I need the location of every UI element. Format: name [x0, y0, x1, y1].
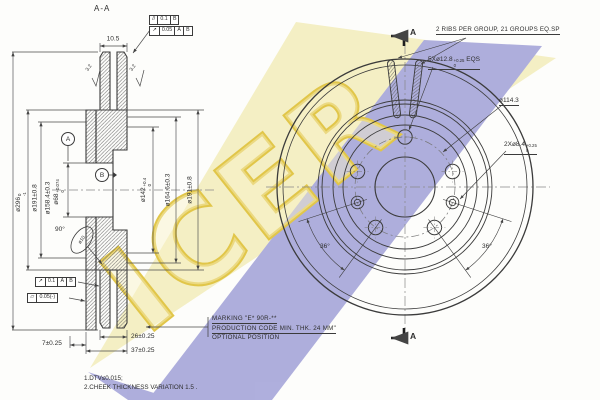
note-cheek: 2.CHEEK THICKNESS VARIATION 1.5 . — [84, 383, 197, 392]
dim-dia68: ø68+0.0740 — [53, 179, 65, 204]
marking-note: MARKING "E* 90R-** PRODUCTION CODE MIN. … — [212, 314, 336, 343]
fcf-flatness: ▱0.05(-) — [28, 293, 58, 303]
fcf-runout: ↗0.1AB — [36, 277, 76, 287]
callout-2-holes: 2Xø8.4+0.250 — [504, 141, 537, 155]
dim-dia296: ø2960-1 — [15, 192, 27, 212]
dim-dia164: ø164.6±0.3 — [165, 174, 172, 207]
ribs-note: 2 RIBS PER GROUP, 21 GROUPS EQ.SP — [436, 26, 560, 35]
section-flag-top: A — [410, 27, 416, 37]
footer-notes: 1.DTV≤0.015; 2.CHEEK THICKNESS VARIATION… — [84, 374, 197, 392]
dim-dia142: ø142+0.40 — [140, 178, 152, 202]
marking-line1: MARKING "E* 90R-** — [212, 315, 277, 324]
angle-36-right: 36° — [482, 243, 492, 250]
dim-dia191-right: ø191±0.8 — [187, 176, 194, 203]
fcf-runout-small: ↗0.05AB — [150, 26, 193, 36]
section-flag-bottom: A — [410, 331, 416, 341]
dim-26: 26±0.25 — [131, 333, 154, 340]
dim-10-5: 10.5 — [107, 36, 120, 43]
section-title: A-A — [94, 4, 110, 13]
dim-dia191-left: ø191±0.8 — [32, 184, 39, 211]
angle-90: 90° — [55, 226, 65, 233]
dim-7: 7±0.25 — [42, 340, 62, 347]
dim-37: 37±0.25 — [131, 347, 154, 354]
fcf-parallelism: //0.1B — [150, 15, 179, 25]
datum-b: B — [95, 168, 109, 182]
note-dtv: 1.DTV≤0.015; — [84, 374, 197, 383]
datum-a: A — [61, 132, 75, 146]
marking-line3: OPTIONAL POSITION — [212, 334, 279, 341]
dim-dia158: ø158.4±0.3 — [45, 182, 52, 215]
angle-36-left: 36° — [320, 243, 330, 250]
callout-bolt-circle: ø114.3 — [499, 97, 519, 106]
callout-5-holes: 5Xø12.8+0.250 EQS — [428, 56, 480, 70]
drawing-sheet: ICER — [0, 0, 600, 400]
